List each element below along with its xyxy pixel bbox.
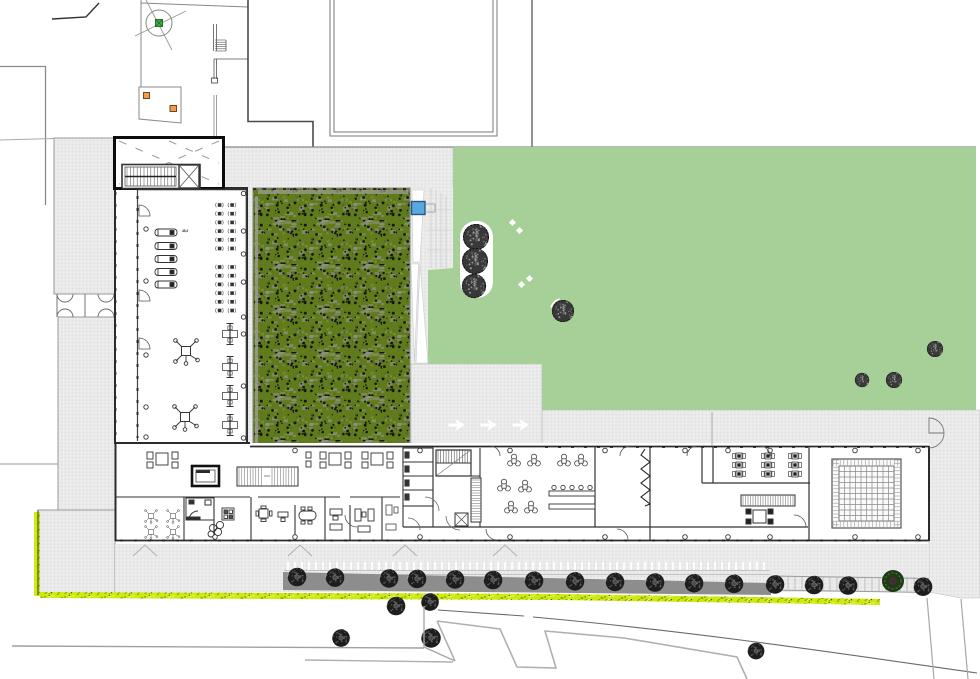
svg-text:45,2: 45,2 [182, 229, 188, 233]
